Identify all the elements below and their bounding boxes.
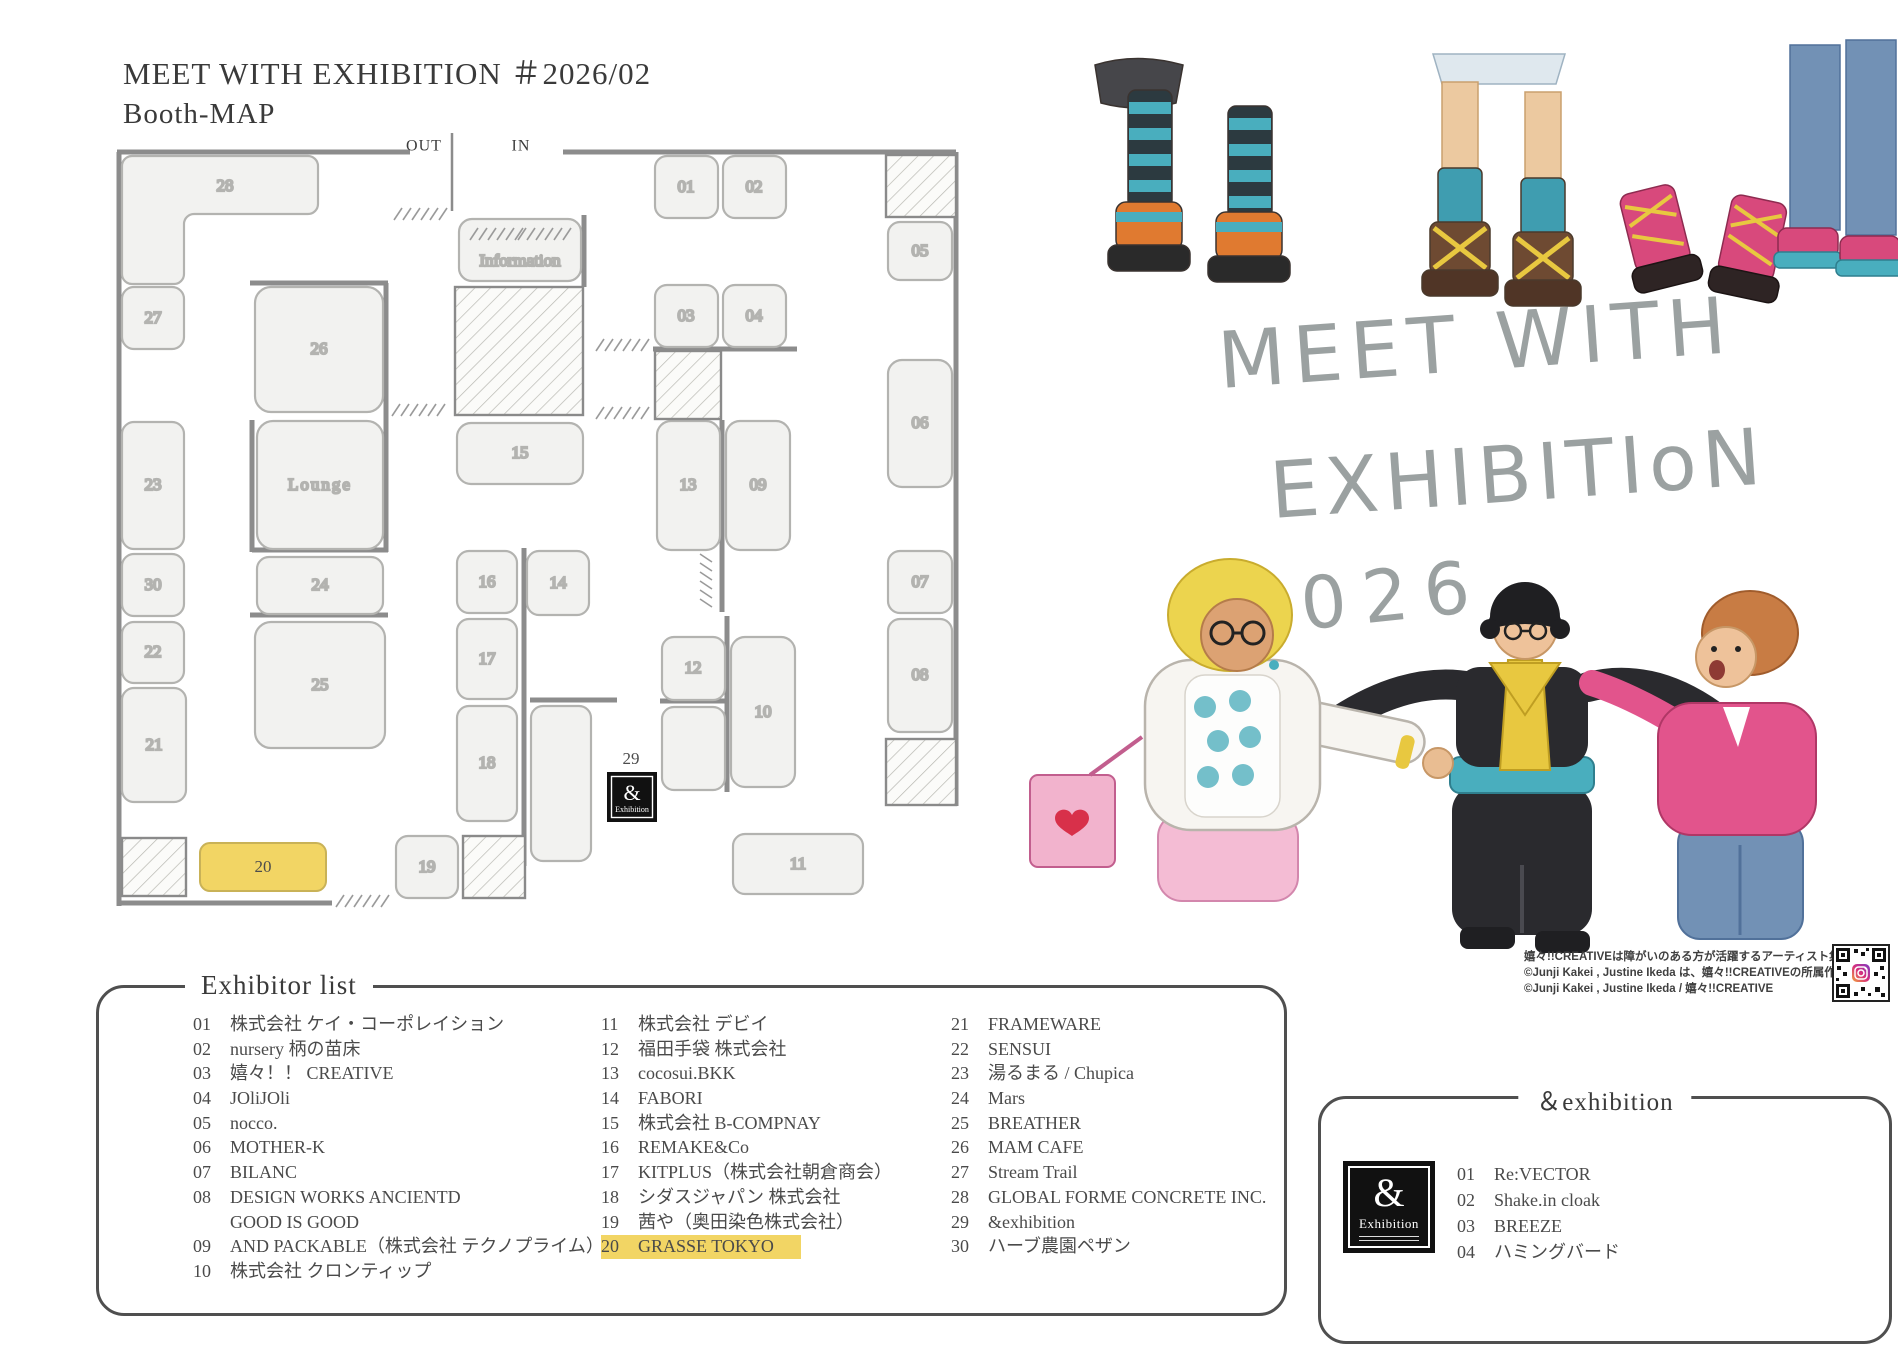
exhibitor-row: 02nursery 柄の苗床 [193, 1037, 593, 1062]
exhibitor-row: 28GLOBAL FORME CONCRETE INC. [951, 1185, 1281, 1210]
svg-text:21: 21 [146, 735, 163, 754]
exhibitor-row: GOOD IS GOOD [193, 1210, 593, 1235]
and-exhibition-row: 03BREEZE [1457, 1213, 1620, 1239]
and-exhibition-logo: & Exhibition [1343, 1161, 1435, 1253]
exhibitor-list-title: Exhibitor list [185, 970, 373, 1001]
artist-credits: 嬉々!!CREATIVEは障がいのある方が活躍するアーティスト集団です！ ©Ju… [1524, 949, 1826, 997]
svg-text:15: 15 [512, 443, 529, 462]
booth-16: 16 [457, 551, 517, 613]
svg-text:09: 09 [750, 475, 767, 494]
svg-text:28: 28 [217, 176, 234, 195]
svg-text:16: 16 [479, 572, 496, 591]
illustration-shoes-left [1095, 59, 1290, 283]
booth-17: 17 [457, 619, 517, 699]
booth-08: 08 [888, 619, 952, 732]
svg-text:22: 22 [145, 642, 162, 661]
booth-18: 18 [457, 706, 517, 821]
exhibitor-row-highlighted: 20GRASSE TOKYO [601, 1234, 946, 1259]
booth-19: 19 [396, 836, 458, 898]
illustration: MEET WITH EXHIBITIoN 2026 [990, 40, 1898, 1020]
booth-14: 14 [527, 551, 589, 615]
and-exhibition-items: 01Re:VECTOR 02Shake.in cloak 03BREEZE 04… [1457, 1161, 1620, 1265]
exhibitor-row: 04JOliJOli [193, 1086, 593, 1111]
booth-12: 12 [662, 637, 725, 700]
and-exhibition-title: ＆exhibition [1518, 1082, 1691, 1118]
booth-10: 10 [731, 637, 795, 787]
svg-text:25: 25 [312, 675, 329, 694]
flyer-page: MEET WITH EXHIBITION ＃2026/02 Booth-MAP [0, 0, 1898, 1350]
instagram-icon [1852, 964, 1870, 982]
exhibitor-row: 01株式会社 ケイ・コーポレイション [193, 1012, 593, 1037]
svg-text:10: 10 [755, 702, 772, 721]
exhibitor-row: 05nocco. [193, 1111, 593, 1136]
svg-text:29: 29 [623, 749, 640, 768]
svg-text:Lounge: Lounge [288, 475, 352, 494]
logo-ampersand: & [1343, 1169, 1435, 1217]
exhibitor-row: 16REMAKE&Co [601, 1135, 946, 1160]
booth-02: 02 [723, 156, 786, 218]
exhibitor-column-1: 01株式会社 ケイ・コーポレイション 02nursery 柄の苗床 03嬉々！！… [193, 1012, 593, 1284]
qr-code [1832, 944, 1890, 1002]
booth-information: Information [459, 219, 581, 281]
svg-text:24: 24 [312, 575, 330, 594]
exhibitor-row: 14FABORI [601, 1086, 946, 1111]
logo-tagline-rule [1359, 1236, 1419, 1241]
exhibitor-row: 25BREATHER [951, 1111, 1281, 1136]
svg-text:18: 18 [479, 753, 496, 772]
booth-22: 22 [122, 622, 184, 683]
credit-line-2: ©Junji Kakei , Justine Ikeda は、嬉々!!CREAT… [1524, 965, 1826, 981]
booth-29-logo: 29 & Exhibition [607, 749, 657, 822]
exhibitor-row: 11株式会社 デビイ [601, 1012, 946, 1037]
exhibitor-row: 13cocosui.BKK [601, 1061, 946, 1086]
svg-text:13: 13 [680, 475, 697, 494]
exhibitor-row: 27Stream Trail [951, 1160, 1281, 1185]
booth-13: 13 [657, 421, 720, 550]
booth-04: 04 [723, 285, 786, 347]
svg-text:11: 11 [790, 854, 806, 873]
exhibitor-row: 08DESIGN WORKS ANCIENTD [193, 1185, 593, 1210]
svg-text:12: 12 [685, 658, 702, 677]
booth-15: 15 [457, 423, 583, 484]
exhibitor-row: 03嬉々！！ CREATIVE [193, 1061, 593, 1086]
and-exhibition-row: 01Re:VECTOR [1457, 1161, 1620, 1187]
exhibitor-row: 15株式会社 B-COMPNAY [601, 1111, 946, 1136]
logo-word: Exhibition [1343, 1217, 1435, 1231]
exhibitor-row: 21FRAMEWARE [951, 1012, 1281, 1037]
and-exhibition-box: ＆exhibition & Exhibition 01Re:VECTOR 02S… [1318, 1096, 1892, 1344]
in-label: IN [512, 138, 531, 155]
booth-27: 27 [122, 287, 184, 349]
booth-09: 09 [726, 421, 790, 550]
exhibitor-row: 22SENSUI [951, 1037, 1281, 1062]
booth-07: 07 [888, 551, 952, 613]
and-exhibition-row: 02Shake.in cloak [1457, 1187, 1620, 1213]
exhibitor-row: 19茜や（奥田染色株式会社） [601, 1210, 946, 1235]
booth-28: 28 [122, 156, 318, 284]
illustration-shoes-far-right [1774, 40, 1898, 276]
booth-lounge: Lounge [257, 421, 383, 549]
booth-24: 24 [257, 557, 383, 614]
exhibitor-row: 12福田手袋 株式会社 [601, 1037, 946, 1062]
booth-25: 25 [255, 622, 385, 748]
booth-23: 23 [122, 422, 184, 549]
illustration-person-middle [1340, 582, 1712, 953]
svg-text:05: 05 [912, 241, 929, 260]
out-label: OUT [406, 138, 442, 155]
svg-text:07: 07 [912, 572, 930, 591]
svg-text:27: 27 [145, 308, 163, 327]
exhibitor-column-3: 21FRAMEWARE 22SENSUI 23湯るまる / Chupica 24… [951, 1012, 1281, 1259]
svg-text:23: 23 [145, 475, 162, 494]
exhibitor-row: 30ハーブ農園ペザン [951, 1234, 1281, 1259]
svg-text:20: 20 [255, 857, 272, 876]
exhibitor-row: 07BILANC [193, 1160, 593, 1185]
handwritten-title: MEET WITH EXHIBITIoN 2026 [1215, 281, 1770, 653]
handwritten-line-2: EXHIBITIoN [1267, 412, 1770, 536]
svg-text:26: 26 [311, 339, 328, 358]
and-exhibition-row: 04ハミングバード [1457, 1239, 1620, 1265]
illustration-shoes-middle [1422, 54, 1581, 306]
booth-11: 11 [733, 834, 863, 894]
exhibitor-row: 24Mars [951, 1086, 1281, 1111]
map-logo-word: Exhibition [615, 805, 649, 814]
exhibitor-row: 23湯るまる / Chupica [951, 1061, 1281, 1086]
credit-line-3: ©Junji Kakei , Justine Ikeda / 嬉々!!CREAT… [1524, 981, 1826, 997]
booth-26: 26 [255, 287, 383, 412]
svg-text:01: 01 [678, 177, 695, 196]
booth-20-highlighted: 20 [200, 843, 326, 891]
booth-06: 06 [888, 360, 952, 487]
svg-text:03: 03 [678, 306, 695, 325]
booth-blank-center [531, 706, 591, 861]
booth-30: 30 [122, 554, 184, 616]
exhibitor-row: 29&exhibition [951, 1210, 1281, 1235]
credit-line-1: 嬉々!!CREATIVEは障がいのある方が活躍するアーティスト集団です！ [1524, 949, 1826, 965]
svg-text:17: 17 [479, 649, 497, 668]
svg-text:06: 06 [912, 413, 929, 432]
exhibitor-row: 10株式会社 クロンティップ [193, 1259, 593, 1284]
illustration-person-right [1592, 591, 1816, 939]
svg-text:Information: Information [479, 251, 561, 270]
exhibitor-row: 06MOTHER-K [193, 1135, 593, 1160]
booth-01: 01 [655, 156, 718, 218]
handwritten-line-1: MEET WITH [1215, 281, 1737, 407]
exhibitor-list-box: Exhibitor list 01株式会社 ケイ・コーポレイション 02nurs… [96, 985, 1287, 1316]
svg-text:02: 02 [746, 177, 763, 196]
booth-03: 03 [655, 285, 718, 347]
svg-text:14: 14 [550, 573, 568, 592]
svg-text:30: 30 [145, 575, 162, 594]
booth-05: 05 [888, 222, 952, 280]
svg-text:08: 08 [912, 665, 929, 684]
booth-blank-12b [662, 707, 725, 790]
map-logo-amp: & [623, 780, 640, 805]
exhibitor-row: 17KITPLUS（株式会社朝倉商会） [601, 1160, 946, 1185]
exhibitor-row: 26MAM CAFE [951, 1135, 1281, 1160]
booth-21: 21 [122, 688, 186, 802]
exhibitor-row: 18シダスジャパン 株式会社 [601, 1185, 946, 1210]
svg-text:19: 19 [419, 857, 436, 876]
exhibitor-column-2: 11株式会社 デビイ 12福田手袋 株式会社 13cocosui.BKK 14F… [601, 1012, 946, 1259]
exhibitor-row: 09AND PACKABLE（株式会社 テクノプライム） [193, 1234, 593, 1259]
booth-map: OUT IN 28 27 23 30 22 21 26 Lounge 24 25 [0, 0, 980, 950]
svg-text:04: 04 [746, 306, 764, 325]
